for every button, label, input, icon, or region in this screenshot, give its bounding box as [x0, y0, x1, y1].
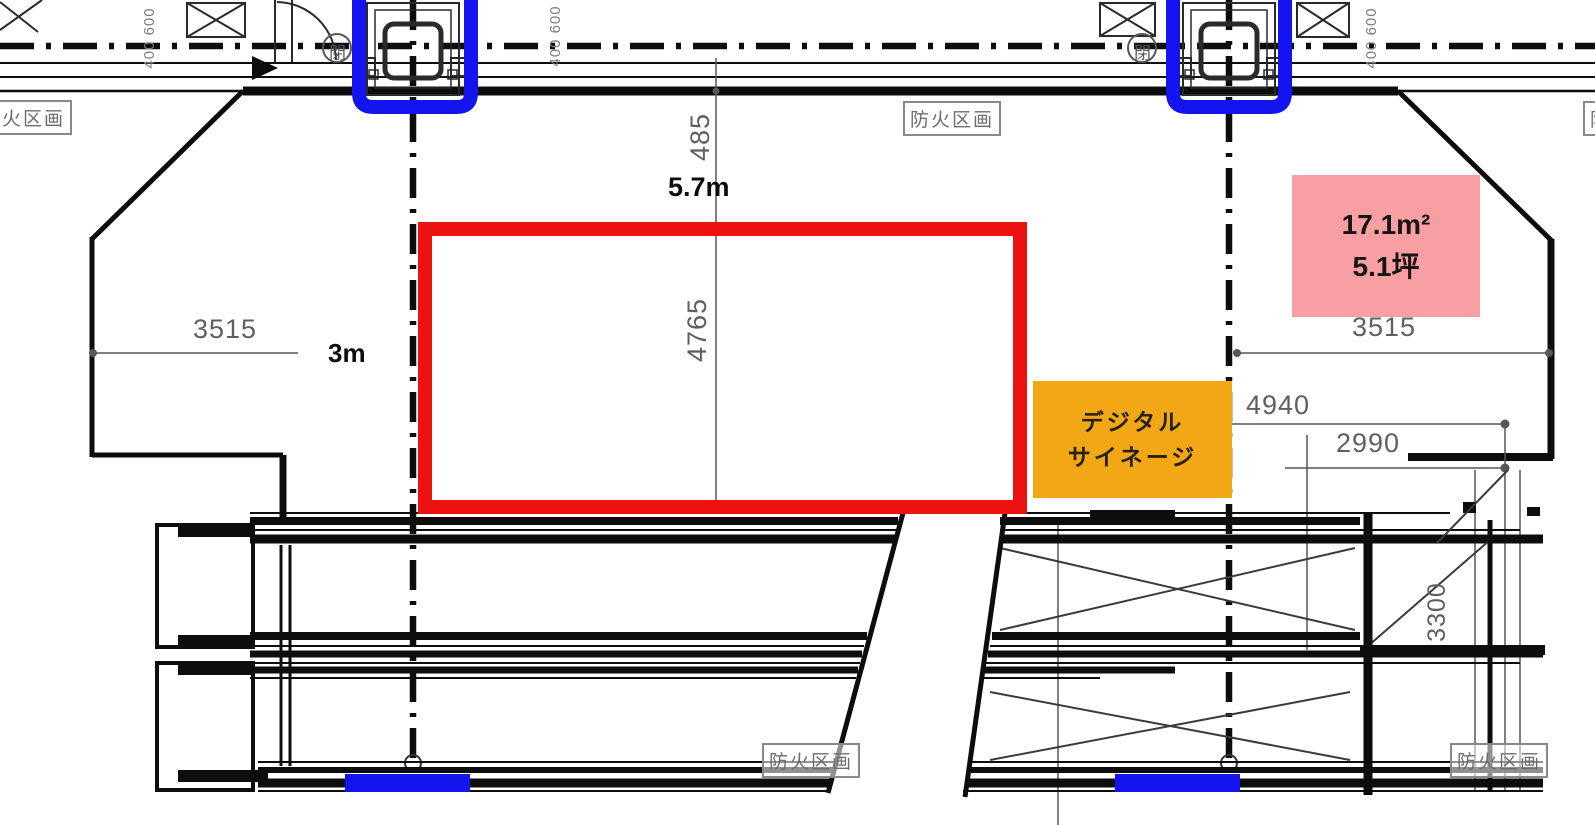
dim-2990: 2990 [1336, 428, 1400, 459]
dim-400-600-right: 400 600 [1337, 3, 1407, 73]
cad-linework [0, 0, 1595, 825]
dim-400-600-left: 400 600 [115, 3, 185, 73]
dim-400-600-mid: 400 600 [521, 1, 591, 71]
dim-3300: 3300 [1395, 570, 1479, 654]
floorplan-canvas: 防火区画 防火区画 防火区画 防火区画 防火区画 閉 閉 485 4765 33… [0, 0, 1595, 825]
fire-zone-label-top-center: 防火区画 [903, 101, 1001, 136]
area-square-meters: 17.1m² [1292, 211, 1480, 239]
landing-marker-right [1115, 774, 1240, 792]
signage-line1: デジタル [1033, 411, 1232, 434]
signage-line2: サイネージ [1033, 446, 1232, 469]
area-info-box: 17.1m² 5.1坪 [1292, 175, 1480, 317]
shaft-symbols [0, 0, 1349, 37]
event-space-width-label: 5.7m [668, 172, 730, 203]
door-close-mark-right: 閉 [1134, 39, 1151, 64]
event-space-depth-label: 3m [328, 338, 366, 369]
fire-zone-label-top-left: 防火区画 [0, 100, 72, 135]
fire-zone-label-top-right-partial: 防火区画 [1583, 101, 1595, 136]
dim-3515-left: 3515 [193, 314, 257, 345]
digital-signage-box: デジタル サイネージ [1033, 381, 1232, 498]
dim-4765: 4765 [655, 288, 739, 372]
fire-zone-label-bottom-right: 防火区画 [1450, 743, 1548, 778]
area-tsubo: 5.1坪 [1292, 253, 1480, 281]
dim-485: 485 [672, 109, 728, 165]
dim-4940: 4940 [1246, 390, 1310, 421]
fire-zone-label-bottom-center: 防火区画 [762, 743, 860, 778]
door-and-marks [252, 0, 1156, 80]
door-close-mark-left: 閉 [329, 39, 346, 64]
landing-marker-left [345, 774, 470, 792]
